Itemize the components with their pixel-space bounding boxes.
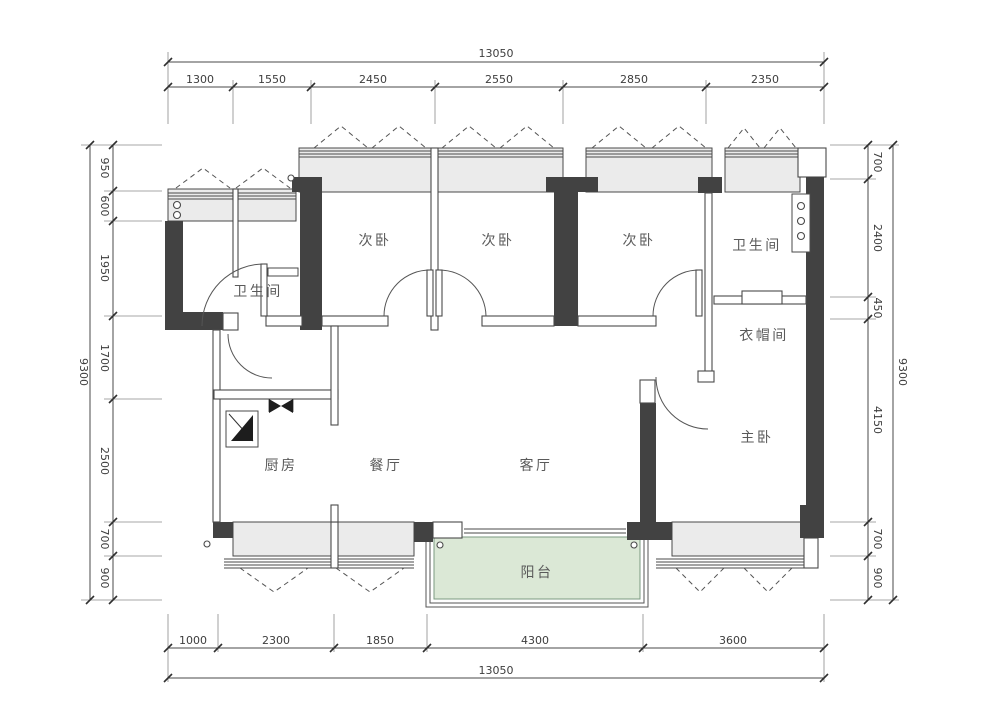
dim-left-seg-3: 1700	[98, 344, 111, 372]
kitchen-dining-window	[233, 522, 414, 556]
dim-left-seg-5: 700	[98, 529, 111, 550]
dim-right-seg-4: 700	[871, 529, 884, 550]
bath2-door-threshold	[742, 291, 782, 304]
room-label-balcony: 阳台	[521, 564, 554, 580]
door-stop-4	[631, 542, 637, 548]
dim-top-seg-0: 1300	[186, 73, 214, 86]
room-label-bed3: 次卧	[623, 232, 656, 248]
dim-right-seg-3: 4150	[871, 406, 884, 434]
balcony-door-jamb	[433, 522, 462, 538]
dim-left-seg-0: 950	[98, 158, 111, 179]
dim-top-seg-1: 1550	[258, 73, 286, 86]
bay-corner-frame	[798, 148, 826, 177]
kitchen-left-wall	[213, 330, 220, 522]
bath1-window-counter	[168, 189, 296, 221]
dim-right-seg-1: 2400	[871, 224, 884, 252]
dim-bottom-seg-1: 2300	[262, 634, 290, 647]
master-wall-upper	[640, 380, 655, 403]
bed1-door-leaf	[427, 270, 433, 316]
dim-bottom-seg-3: 4300	[521, 634, 549, 647]
bed1-door-arc	[384, 270, 430, 316]
bath1-partition	[233, 189, 238, 277]
bottom-window-mullion	[331, 522, 338, 568]
dim-right-seg-2: 450	[871, 298, 884, 319]
dim-top-seg-5: 2350	[751, 73, 779, 86]
dim-bottom-total: 13050	[479, 664, 514, 677]
bath1-shelf	[268, 268, 298, 276]
room-label-living: 客厅	[520, 457, 553, 473]
kitchen-right-wall-upper	[331, 326, 338, 425]
room-label-bath2: 卫生间	[732, 237, 782, 253]
bed3-door-leaf	[696, 270, 702, 316]
entry-door-jamb	[223, 313, 238, 330]
bed2-door-leaf	[436, 270, 442, 316]
dim-bottom-seg-4: 3600	[719, 634, 747, 647]
master-door-jamb	[698, 371, 714, 382]
room-label-bath1: 卫生间	[233, 283, 283, 299]
room-label-cloak: 衣帽间	[739, 327, 789, 343]
kitchen-right-wall-lower	[331, 505, 338, 522]
fixtures	[174, 175, 811, 548]
room-label-kitchen: 厨房	[265, 457, 298, 473]
dimension-right: 700 2400 450 4150 700 900 9300	[830, 141, 909, 604]
floor-plan-page: 13050 1300 1550 2450 2550 2850 2350 1000…	[0, 0, 1000, 720]
entry-door-arc	[228, 334, 272, 378]
bath1-hob-burner-1	[174, 202, 181, 209]
bay-window-bath2	[725, 148, 800, 192]
bay-windows-top	[168, 148, 826, 221]
dim-top-seg-4: 2850	[620, 73, 648, 86]
dim-left-total: 9300	[77, 358, 90, 386]
dim-left-seg-6: 900	[98, 568, 111, 589]
room-label-bed1: 次卧	[359, 232, 392, 248]
dim-left-seg-4: 2500	[98, 447, 111, 475]
bed2-door-arc	[439, 270, 486, 316]
room-label-master: 主卧	[741, 429, 774, 445]
dim-top-seg-3: 2550	[485, 73, 513, 86]
dim-right-total: 9300	[896, 358, 909, 386]
door-stop-1	[288, 175, 294, 181]
door-stop-3	[437, 542, 443, 548]
dimension-bottom: 1000 2300 1850 4300 3600 13050	[164, 614, 828, 682]
dimension-top: 13050 1300 1550 2450 2550 2850 2350	[164, 47, 828, 124]
door-stop-2	[204, 541, 210, 547]
bed3-door-arc	[653, 270, 699, 316]
bath1-hob-burner-2	[174, 212, 181, 219]
floor-plan-svg: 13050 1300 1550 2450 2550 2850 2350 1000…	[0, 0, 1000, 720]
dim-top-seg-2: 2450	[359, 73, 387, 86]
bay-window-bed3	[586, 148, 712, 192]
master-bay-window	[672, 522, 804, 556]
room-label-dining: 餐厅	[370, 457, 403, 473]
dim-top-total: 13050	[479, 47, 514, 60]
dim-bottom-seg-2: 1850	[366, 634, 394, 647]
dim-left-seg-2: 1950	[98, 254, 111, 282]
kitchen-top-wall	[214, 390, 338, 399]
dim-left-seg-1: 600	[98, 196, 111, 217]
master-bay-step	[804, 538, 818, 568]
dim-right-seg-0: 700	[871, 152, 884, 173]
dim-right-seg-5: 900	[871, 568, 884, 589]
duct-damper-icon	[269, 399, 293, 413]
dimension-left: 9300 950 600 1950 1700 2500 700 900	[77, 141, 162, 604]
bed3-bath2-cloak-wall	[705, 193, 712, 372]
master-door-arc	[656, 377, 708, 429]
dim-bottom-seg-0: 1000	[179, 634, 207, 647]
room-label-bed2: 次卧	[482, 232, 515, 248]
